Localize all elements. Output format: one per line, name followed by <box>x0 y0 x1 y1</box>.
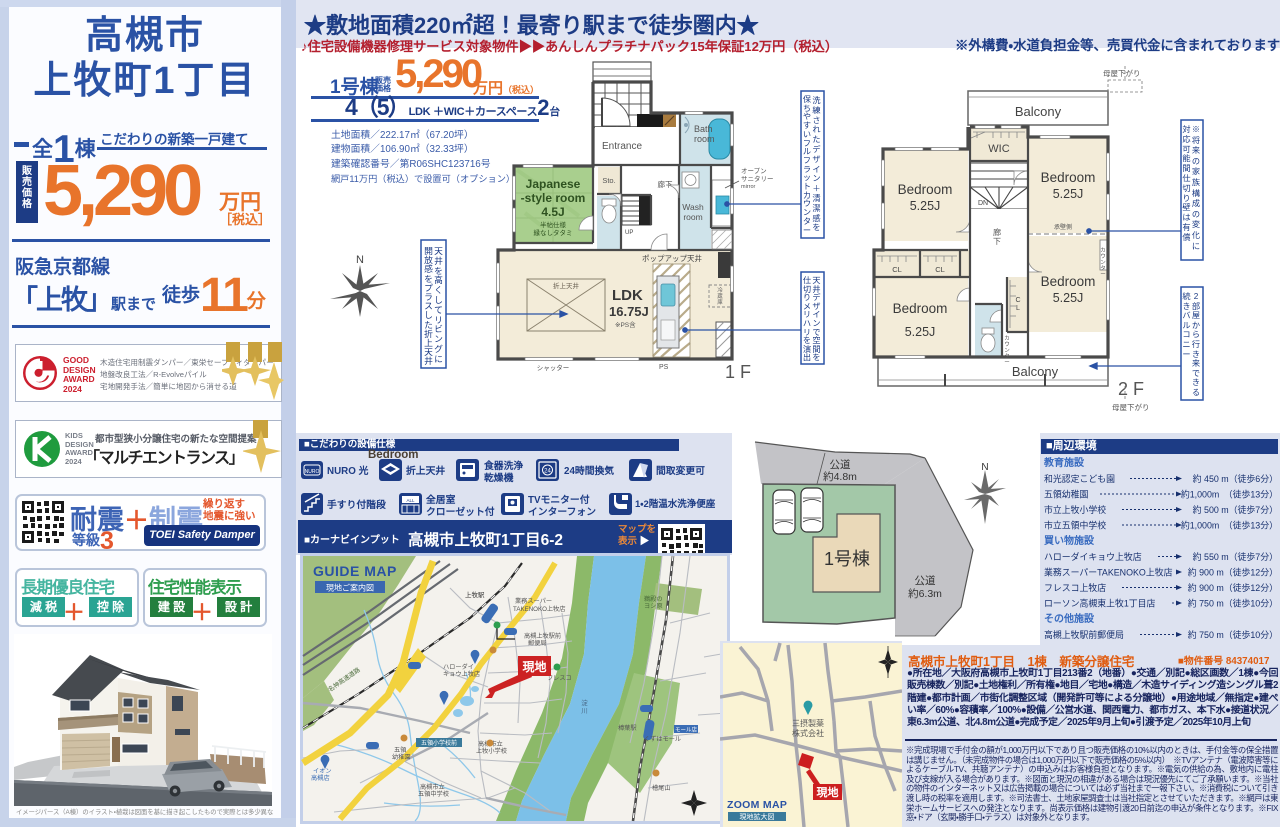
svg-text:2 F: 2 F <box>1118 379 1144 399</box>
svg-text:五領幼稚園: 五領幼稚園 <box>1044 489 1088 500</box>
svg-text:room: room <box>694 134 715 144</box>
svg-text:Bedroom: Bedroom <box>893 301 948 316</box>
svg-text:フレスコ: フレスコ <box>547 675 572 682</box>
svg-text:5.25J: 5.25J <box>1053 187 1084 201</box>
svg-text:高槻上牧駅前郵便局: 高槻上牧駅前郵便局 <box>1044 629 1124 640</box>
svg-text:4.5J: 4.5J <box>541 205 564 219</box>
svg-text:承壁側: 承壁側 <box>1054 223 1072 231</box>
svg-text:room: room <box>683 212 702 222</box>
svg-text:Japanese: Japanese <box>526 177 581 191</box>
svg-text:業務スーパーTAKENOKO上牧店: 業務スーパーTAKENOKO上牧店 <box>1044 567 1173 578</box>
svg-text:クローゼット付: クローゼット付 <box>426 505 495 518</box>
svg-text:Bath: Bath <box>694 124 713 134</box>
svg-text:N: N <box>356 254 364 266</box>
svg-text:高槻店: 高槻店 <box>311 774 330 782</box>
svg-text:NURO 光: NURO 光 <box>327 464 369 477</box>
svg-text:※PS含: ※PS含 <box>615 321 636 329</box>
svg-text:Balcony: Balcony <box>1015 104 1062 119</box>
svg-text:現地ご案内図: 現地ご案内図 <box>326 583 374 593</box>
svg-text:LDK: LDK <box>612 287 643 304</box>
svg-text:母屋下がり: 母屋下がり <box>1112 402 1150 412</box>
svg-text:1 F: 1 F <box>725 362 751 382</box>
svg-text:NURO: NURO <box>305 469 320 475</box>
svg-text:インターフォン: インターフォン <box>528 506 596 518</box>
svg-text:Balcony: Balcony <box>1012 364 1059 379</box>
svg-text:約 750 m（徒歩10分）: 約 750 m（徒歩10分） <box>1188 598 1278 609</box>
svg-text:UP: UP <box>625 230 633 236</box>
svg-text:mirror: mirror <box>741 184 756 190</box>
svg-text:株式会社: 株式会社 <box>792 728 824 738</box>
svg-text:買い物施設: 買い物施設 <box>1044 534 1095 547</box>
svg-text:約 500 m（徒歩7分）: 約 500 m（徒歩7分） <box>1193 504 1278 515</box>
svg-text:Bedroom: Bedroom <box>1041 170 1096 185</box>
svg-text:Sto.: Sto. <box>602 176 615 185</box>
svg-text:檜尾山: 檜尾山 <box>652 784 671 792</box>
svg-text:約1,000m （徒歩13分）: 約1,000m （徒歩13分） <box>1181 489 1278 500</box>
svg-text:約4.8m: 約4.8m <box>823 470 857 483</box>
svg-text:現地: 現地 <box>817 785 839 799</box>
svg-text:ALL: ALL <box>406 498 415 503</box>
svg-text:1・2階温水洗浄便座: 1・2階温水洗浄便座 <box>635 498 716 510</box>
svg-text:母屋下がり: 母屋下がり <box>1103 68 1141 78</box>
svg-text:教育施設: 教育施設 <box>1043 456 1085 469</box>
svg-text:イオン: イオン <box>313 768 332 775</box>
svg-text:約 900 m（徒歩12分）: 約 900 m（徒歩12分） <box>1188 582 1278 593</box>
svg-text:現地拡大図: 現地拡大図 <box>740 812 775 821</box>
svg-text:廊下: 廊下 <box>658 179 673 189</box>
svg-text:約6.3m: 約6.3m <box>908 587 942 600</box>
svg-text:その他施設: その他施設 <box>1044 612 1095 625</box>
svg-text:5.25J: 5.25J <box>910 199 941 213</box>
svg-text:シャッター: シャッター <box>537 363 570 372</box>
svg-text:CL: CL <box>935 265 945 274</box>
svg-text:約 550 m（徒歩7分）: 約 550 m（徒歩7分） <box>1193 551 1278 562</box>
svg-text:TAKENOKO上牧店: TAKENOKO上牧店 <box>513 605 565 613</box>
svg-text:ZOOM MAP: ZOOM MAP <box>727 799 787 811</box>
svg-text:ハローダイキョウ上牧店: ハローダイキョウ上牧店 <box>1044 551 1142 562</box>
svg-text:約 900 m（徒歩12分）: 約 900 m（徒歩12分） <box>1188 567 1278 578</box>
svg-text:約 450 m（徒歩6分）: 約 450 m（徒歩6分） <box>1193 473 1278 484</box>
svg-text:公道: 公道 <box>830 458 851 471</box>
svg-text:モール店: モール店 <box>675 727 698 734</box>
svg-text:フレスコ上牧店: フレスコ上牧店 <box>1044 582 1106 593</box>
svg-text:DN: DN <box>978 200 988 207</box>
svg-text:上牧小学校: 上牧小学校 <box>476 747 507 755</box>
svg-text:CL: CL <box>892 265 902 274</box>
svg-text:市立五領中学校: 市立五領中学校 <box>1044 520 1106 531</box>
svg-text:三摂製薬: 三摂製薬 <box>792 718 824 728</box>
svg-text:間取変更可: 間取変更可 <box>656 464 705 477</box>
svg-text:24: 24 <box>544 469 551 475</box>
svg-text:高槻上牧駅前: 高槻上牧駅前 <box>524 632 561 640</box>
svg-text:くずはモール: くずはモール <box>644 735 681 743</box>
svg-text:Wash: Wash <box>682 202 704 212</box>
svg-text:乾燥機: 乾燥機 <box>484 471 514 484</box>
svg-text:約 750 m（徒歩10分）: 約 750 m（徒歩10分） <box>1188 629 1278 640</box>
svg-text:-style room: -style room <box>521 191 586 205</box>
svg-text:折上天井: 折上天井 <box>406 464 445 477</box>
svg-text:樟葉駅: 樟葉駅 <box>618 724 637 732</box>
svg-text:5.25J: 5.25J <box>905 325 936 339</box>
svg-text:GUIDE MAP: GUIDE MAP <box>313 563 397 579</box>
svg-text:公道: 公道 <box>915 574 936 587</box>
svg-text:和光認定こども園: 和光認定こども園 <box>1044 473 1115 484</box>
svg-text:現地: 現地 <box>522 659 546 674</box>
svg-text:1号棟: 1号棟 <box>824 549 870 569</box>
svg-text:市立上牧小学校: 市立上牧小学校 <box>1044 504 1106 515</box>
svg-text:5.25J: 5.25J <box>1053 291 1084 305</box>
svg-text:16.75J: 16.75J <box>609 304 649 319</box>
svg-text:PS: PS <box>659 364 669 371</box>
svg-text:約1,000m （徒歩13分）: 約1,000m （徒歩13分） <box>1181 520 1278 531</box>
svg-text:半帖仕様: 半帖仕様 <box>540 220 567 229</box>
svg-text:ヨシ原: ヨシ原 <box>644 603 663 610</box>
svg-text:五領小学校前: 五領小学校前 <box>421 739 457 747</box>
svg-text:郵便局: 郵便局 <box>528 639 547 647</box>
svg-text:鵜殿の: 鵜殿の <box>644 595 663 603</box>
svg-text:24時間換気: 24時間換気 <box>564 464 614 477</box>
svg-text:TVモニター付: TVモニター付 <box>528 493 590 506</box>
svg-text:WIC: WIC <box>988 143 1009 155</box>
svg-text:縁なしタタミ: 縁なしタタミ <box>534 228 573 237</box>
svg-text:折上天井: 折上天井 <box>553 281 580 290</box>
svg-text:業務スーパー: 業務スーパー <box>515 597 552 605</box>
svg-text:幼稚園: 幼稚園 <box>392 753 411 761</box>
svg-text:高槻市立: 高槻市立 <box>420 783 445 791</box>
svg-text:手すり付階段: 手すり付階段 <box>327 498 386 511</box>
svg-text:ローソン高槻東上牧1丁目店: ローソン高槻東上牧1丁目店 <box>1044 598 1156 609</box>
svg-text:食器洗浄: 食器洗浄 <box>484 459 523 472</box>
svg-text:Bedroom: Bedroom <box>1041 274 1096 289</box>
svg-text:オープン: オープン <box>741 167 767 175</box>
svg-text:上牧駅: 上牧駅 <box>465 590 485 599</box>
svg-text:Bedroom: Bedroom <box>898 182 953 197</box>
svg-text:ポップアップ天井: ポップアップ天井 <box>642 253 702 263</box>
svg-text:全居室: 全居室 <box>426 493 456 506</box>
svg-text:ハローダイ: ハローダイ <box>443 663 474 671</box>
svg-text:五領中学校: 五領中学校 <box>418 790 449 798</box>
svg-text:キョウ上牧店: キョウ上牧店 <box>443 670 480 678</box>
svg-text:サニタリー: サニタリー <box>741 174 774 183</box>
svg-text:Entrance: Entrance <box>602 141 642 152</box>
svg-text:五領: 五領 <box>394 746 407 754</box>
